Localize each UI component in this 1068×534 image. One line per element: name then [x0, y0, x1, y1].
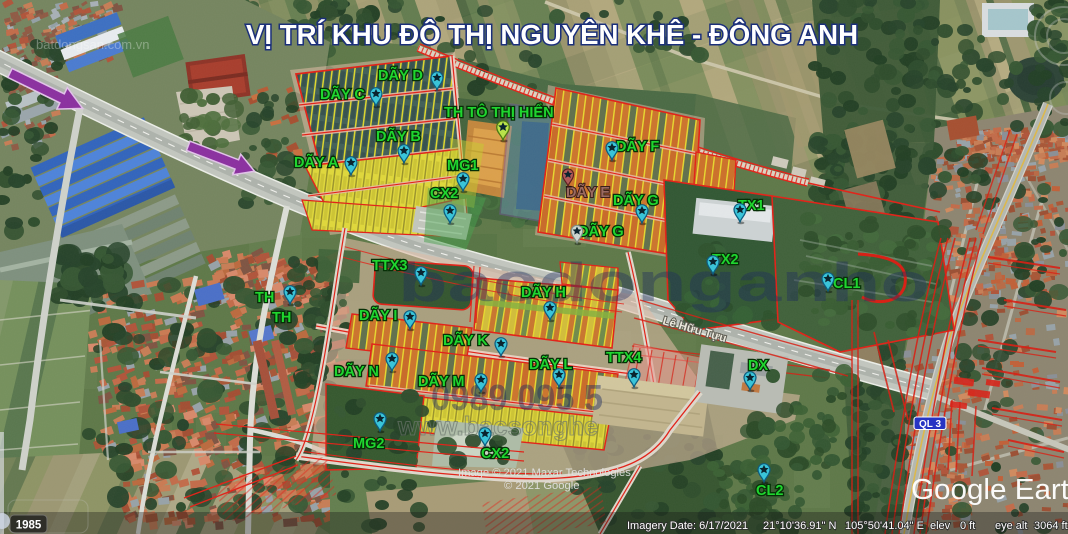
svg-text:TTX3: TTX3: [372, 258, 407, 274]
svg-text:DÃY I: DÃY I: [359, 306, 397, 324]
svg-text:DÃY E: DÃY E: [566, 183, 610, 201]
svg-text:105°50'41.04" E: 105°50'41.04" E: [845, 520, 924, 532]
svg-text:MG2: MG2: [353, 436, 384, 452]
svg-text:DÃY A: DÃY A: [294, 153, 339, 171]
svg-text:CL1: CL1: [833, 276, 860, 292]
svg-text:eye alt: eye alt: [995, 520, 1027, 532]
svg-text:DÃY K: DÃY K: [443, 331, 488, 349]
svg-text:CX2: CX2: [430, 186, 458, 202]
svg-text:DÃY G: DÃY G: [613, 191, 659, 209]
svg-text:TH TÔ THỊ HIỂN: TH TÔ THỊ HIỂN: [444, 103, 554, 121]
svg-text:Google Eart: Google Eart: [911, 474, 1068, 506]
svg-text:DÃY G: DÃY G: [578, 222, 624, 240]
svg-text:3064 ft: 3064 ft: [1034, 520, 1068, 532]
svg-text:DÃY C: DÃY C: [320, 85, 365, 103]
svg-text:TTX4: TTX4: [606, 350, 641, 366]
svg-text:21°10'36.91" N: 21°10'36.91" N: [763, 520, 836, 532]
svg-text:Image © 2021 Maxar Technologi: Image © 2021 Maxar Technologies: [458, 467, 631, 479]
svg-text:DÃY H: DÃY H: [521, 283, 566, 301]
svg-text:Imagery Date: 6/17/2021: Imagery Date: 6/17/2021: [627, 520, 748, 532]
svg-text:DÃY M: DÃY M: [418, 372, 464, 390]
svg-text:© 2021 Google: © 2021 Google: [504, 480, 579, 492]
svg-text:TH: TH: [255, 290, 274, 306]
svg-text:DÃY F: DÃY F: [616, 137, 659, 155]
svg-text:1985: 1985: [16, 520, 42, 532]
svg-text:TH: TH: [272, 310, 291, 326]
svg-text:DÃY D: DÃY D: [378, 66, 423, 84]
svg-text:CL2: CL2: [756, 483, 783, 499]
svg-text:VỊ TRÍ KHU ĐÔ THỊ NGUYÊN KHÊ -: VỊ TRÍ KHU ĐÔ THỊ NGUYÊN KHÊ - ĐÔNG ANH: [246, 18, 858, 50]
svg-text:0 ft: 0 ft: [960, 520, 975, 532]
svg-text:DÃY N: DÃY N: [334, 362, 379, 380]
svg-text:MG1: MG1: [447, 158, 478, 174]
svg-text:elev: elev: [930, 520, 951, 532]
svg-text:DÃY L: DÃY L: [529, 355, 572, 373]
svg-text:DÃY B: DÃY B: [376, 127, 421, 145]
svg-text:CX2: CX2: [481, 446, 509, 462]
